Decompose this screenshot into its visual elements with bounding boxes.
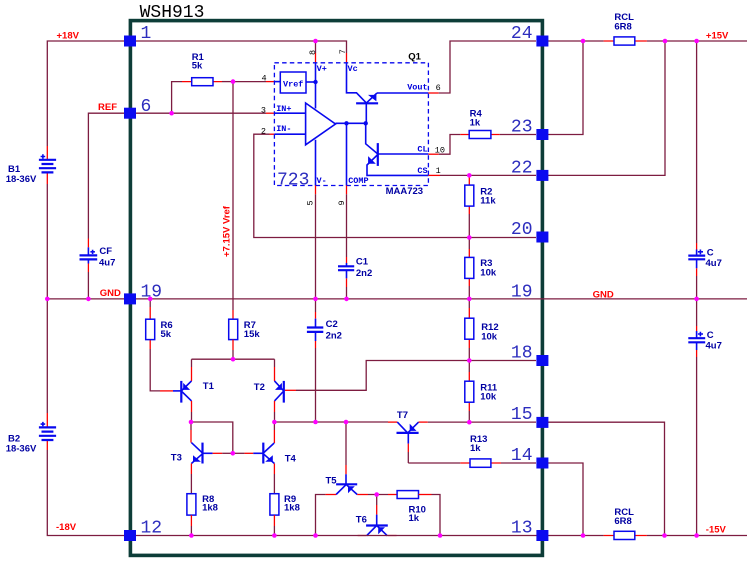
svg-text:COMP: COMP [348,176,368,186]
svg-text:1k8: 1k8 [202,503,218,514]
svg-text:-15V: -15V [706,524,727,535]
svg-text:23: 23 [511,118,533,138]
svg-text:2: 2 [261,126,266,136]
svg-text:6R8: 6R8 [614,21,631,32]
svg-text:+15V: +15V [706,31,729,42]
svg-text:1k8: 1k8 [284,503,300,514]
svg-text:7: 7 [338,49,348,54]
svg-text:4: 4 [262,73,267,83]
svg-text:Vc: Vc [348,64,358,74]
svg-text:9: 9 [337,200,347,205]
svg-text:Q1: Q1 [408,51,421,62]
svg-text:14: 14 [511,446,533,466]
svg-text:5: 5 [306,200,316,205]
svg-text:10k: 10k [480,392,497,403]
svg-text:T5: T5 [326,476,338,487]
svg-text:CF: CF [99,246,112,257]
svg-text:IN+: IN+ [276,104,291,114]
svg-text:V+: V+ [317,64,327,74]
svg-text:24: 24 [511,24,533,44]
svg-text:Vout: Vout [407,83,427,93]
svg-text:GND: GND [100,288,121,299]
svg-text:-18V: -18V [56,522,77,533]
svg-text:12: 12 [141,519,163,539]
svg-text:CS: CS [417,166,427,176]
svg-text:2n2: 2n2 [356,268,372,279]
svg-text:4u7: 4u7 [706,341,722,352]
svg-text:C1: C1 [356,257,369,268]
svg-text:+7.15V Vref: +7.15V Vref [222,205,233,257]
svg-text:C: C [707,330,714,341]
svg-text:+18V: +18V [57,31,80,42]
svg-text:T6: T6 [356,515,367,526]
svg-text:V-: V- [317,176,327,186]
svg-text:1: 1 [141,24,152,44]
svg-text:723: 723 [277,171,309,191]
svg-text:3: 3 [261,105,266,115]
svg-text:C: C [707,248,714,259]
svg-text:20: 20 [511,220,533,240]
svg-text:18-36V: 18-36V [6,174,37,185]
svg-text:19: 19 [511,283,533,303]
svg-text:6R8: 6R8 [614,516,631,527]
svg-text:2n2: 2n2 [326,331,342,342]
svg-text:11k: 11k [480,196,496,207]
svg-text:19: 19 [141,283,163,303]
svg-text:C2: C2 [326,319,338,330]
svg-text:18-36V: 18-36V [6,444,37,455]
svg-text:8: 8 [308,50,318,55]
svg-text:4u7: 4u7 [99,258,115,269]
svg-text:T1: T1 [203,381,215,392]
svg-text:10: 10 [435,145,445,155]
svg-text:GND: GND [593,289,614,300]
svg-text:IN-: IN- [276,124,291,134]
svg-text:6: 6 [141,97,152,117]
svg-text:T2: T2 [254,382,265,393]
svg-text:T3: T3 [171,453,182,464]
svg-text:5k: 5k [192,61,203,72]
svg-text:15k: 15k [244,329,261,340]
svg-text:10k: 10k [480,267,497,278]
svg-text:T4: T4 [285,453,297,464]
svg-text:4u7: 4u7 [706,258,722,269]
svg-text:10k: 10k [481,331,498,342]
svg-text:6: 6 [436,83,441,93]
svg-text:T7: T7 [397,410,408,421]
svg-text:15: 15 [511,405,533,425]
svg-text:MAA723: MAA723 [386,186,424,197]
svg-text:REF: REF [98,102,117,113]
svg-text:5k: 5k [161,329,172,340]
svg-text:1k: 1k [470,443,481,454]
svg-text:1k: 1k [409,513,420,524]
svg-text:13: 13 [511,519,533,539]
svg-text:WSH913: WSH913 [140,3,205,23]
svg-text:22: 22 [511,158,533,178]
svg-text:18: 18 [511,344,533,364]
svg-text:1k: 1k [470,118,481,129]
svg-text:Vref: Vref [283,79,303,89]
svg-text:CL: CL [417,145,427,155]
svg-text:1: 1 [436,166,441,176]
